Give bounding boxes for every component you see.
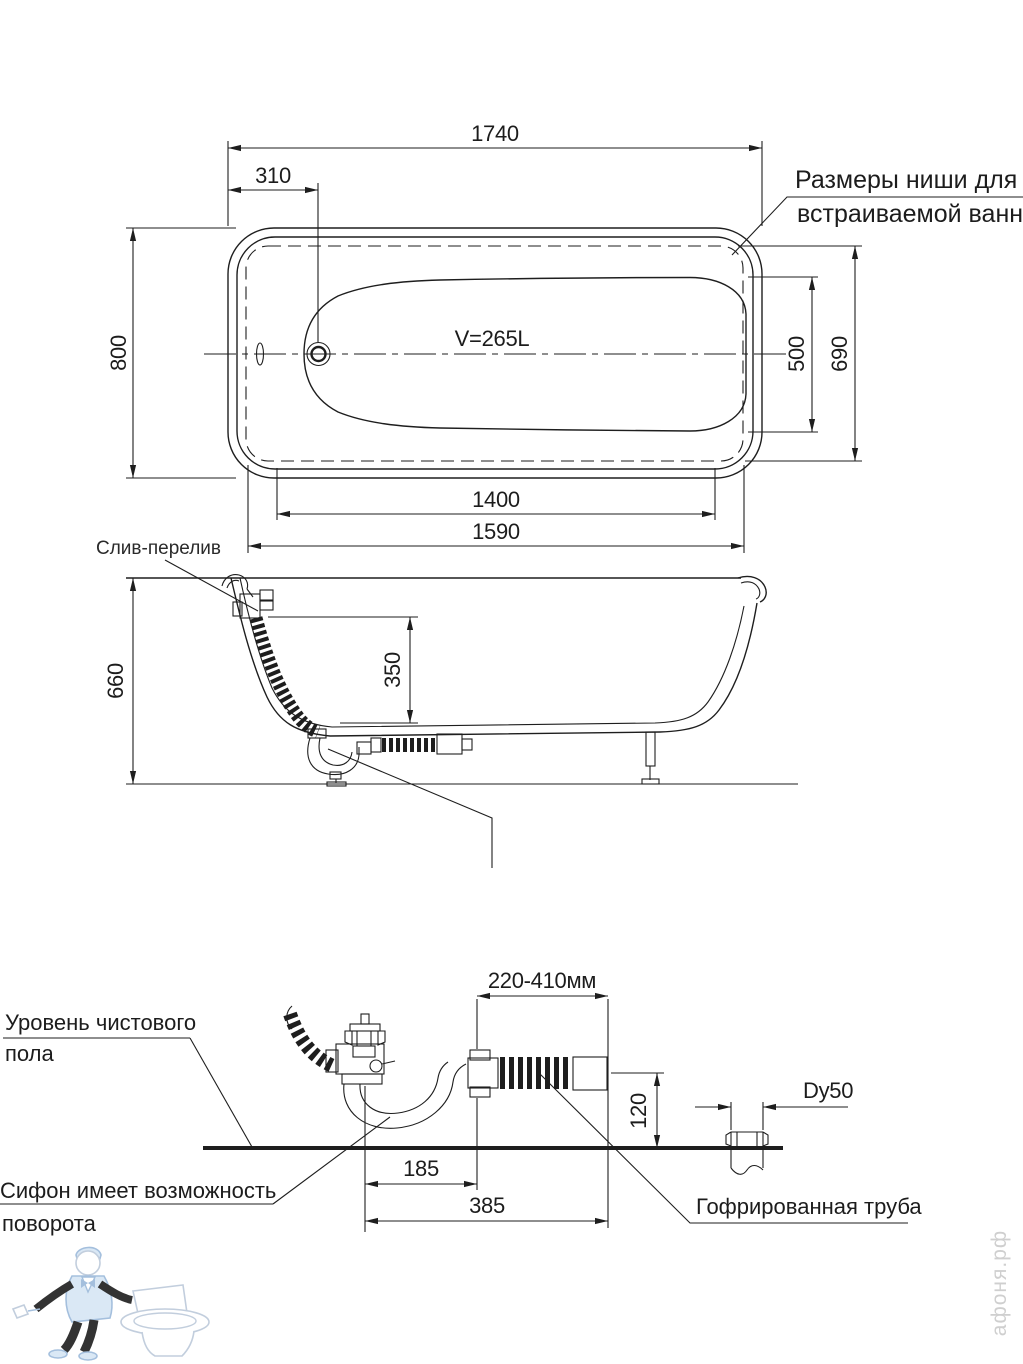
pipe-end-sleeve xyxy=(573,1057,607,1090)
overflow-label: Слив-перелив xyxy=(96,538,221,559)
tub-leg xyxy=(642,732,659,784)
rim-lip-right-inner xyxy=(741,582,760,599)
overflow-hose xyxy=(256,618,318,732)
floor-level-callout: Уровень чистового пола xyxy=(3,1010,252,1147)
siphon-detail-assembly xyxy=(287,1006,607,1128)
svg-text:660: 660 xyxy=(103,663,128,699)
svg-text:185: 185 xyxy=(403,1156,439,1181)
svg-text:1740: 1740 xyxy=(471,121,519,146)
svg-text:1590: 1590 xyxy=(472,519,520,544)
pipe-wrench xyxy=(13,1305,28,1318)
svg-text:120: 120 xyxy=(626,1093,651,1129)
dim-trap-to-pipe: 185 xyxy=(365,1086,477,1232)
dim-depth: 350 xyxy=(268,617,418,723)
dim-inner-width: 500 xyxy=(784,277,812,432)
dim-drain-offset: 310 xyxy=(228,163,318,190)
tub-profile-inner xyxy=(240,578,744,727)
niche-note-line1: Размеры ниши для xyxy=(795,166,1017,194)
svg-text:500: 500 xyxy=(784,336,809,372)
top-view: V=265L 1740 310 800 xyxy=(106,121,1023,553)
svg-text:220-410мм: 220-410мм xyxy=(488,968,596,993)
dim-pipe-height: 120 xyxy=(611,1073,664,1148)
siphon-body xyxy=(336,1044,384,1074)
niche-note-line2: встраиваемой ванны xyxy=(797,200,1023,228)
svg-text:800: 800 xyxy=(106,335,131,371)
floor-label-line1: Уровень чистового xyxy=(5,1010,196,1035)
dim-trap-to-end: 385 xyxy=(365,1193,608,1221)
plumber-shoe-right xyxy=(79,1352,97,1360)
svg-text:350: 350 xyxy=(380,652,405,688)
svg-text:310: 310 xyxy=(255,163,291,188)
dim-total-length: 1740 xyxy=(228,121,762,148)
side-view: 660 350 Слив-перелив xyxy=(96,538,798,868)
dim-niche-width: 690 xyxy=(827,246,855,461)
svg-text:1400: 1400 xyxy=(472,487,520,512)
floor-label-line2: пола xyxy=(5,1041,55,1066)
dy50-label: Dy50 xyxy=(803,1078,853,1103)
s-trap-inner xyxy=(360,1062,448,1113)
bathtub-technical-drawing: V=265L 1740 310 800 xyxy=(0,0,1023,1364)
tub-rim-outline xyxy=(237,237,753,469)
dim-niche-length: 1590 xyxy=(248,519,744,546)
dim-total-width: 800 xyxy=(106,228,133,478)
tub-outer-outline xyxy=(228,228,762,478)
leader-to-detail xyxy=(328,749,492,868)
pipe-label: Гофрированная труба xyxy=(696,1194,922,1219)
pipe-union xyxy=(468,1058,498,1088)
dim-adjust-range: 220-410мм xyxy=(477,968,608,1228)
volume-label: V=265L xyxy=(455,326,530,351)
tub-profile-outer xyxy=(231,578,757,736)
dim-inner-length: 1400 xyxy=(277,487,715,514)
svg-text:690: 690 xyxy=(827,336,852,372)
siphon-label-line2: поворота xyxy=(2,1211,97,1236)
drain-pipe-dy50: Dy50 xyxy=(695,1078,853,1174)
dim-total-height: 660 xyxy=(103,578,133,784)
toilet-base xyxy=(142,1331,194,1356)
plumber-head xyxy=(76,1251,100,1275)
plumber-shoe-left xyxy=(49,1350,67,1358)
svg-text:385: 385 xyxy=(469,1193,505,1218)
plumber-leg-right xyxy=(84,1320,94,1352)
site-watermark: афоня.рф xyxy=(988,1230,1011,1336)
niche-note: Размеры ниши для встраиваемой ванны xyxy=(732,166,1023,255)
drain-flange xyxy=(350,1024,380,1031)
pipe-break-mark xyxy=(731,1166,763,1175)
watermark-plumber-logo xyxy=(13,1247,209,1360)
detail-view: Уровень чистового пола xyxy=(0,968,922,1236)
siphon-rotation-callout: Сифон имеет возможность поворота xyxy=(0,1117,390,1236)
plumber-leg-left xyxy=(64,1322,78,1350)
rim-lip-right xyxy=(738,576,766,602)
siphon-label-line1: Сифон имеет возможность xyxy=(0,1178,276,1203)
